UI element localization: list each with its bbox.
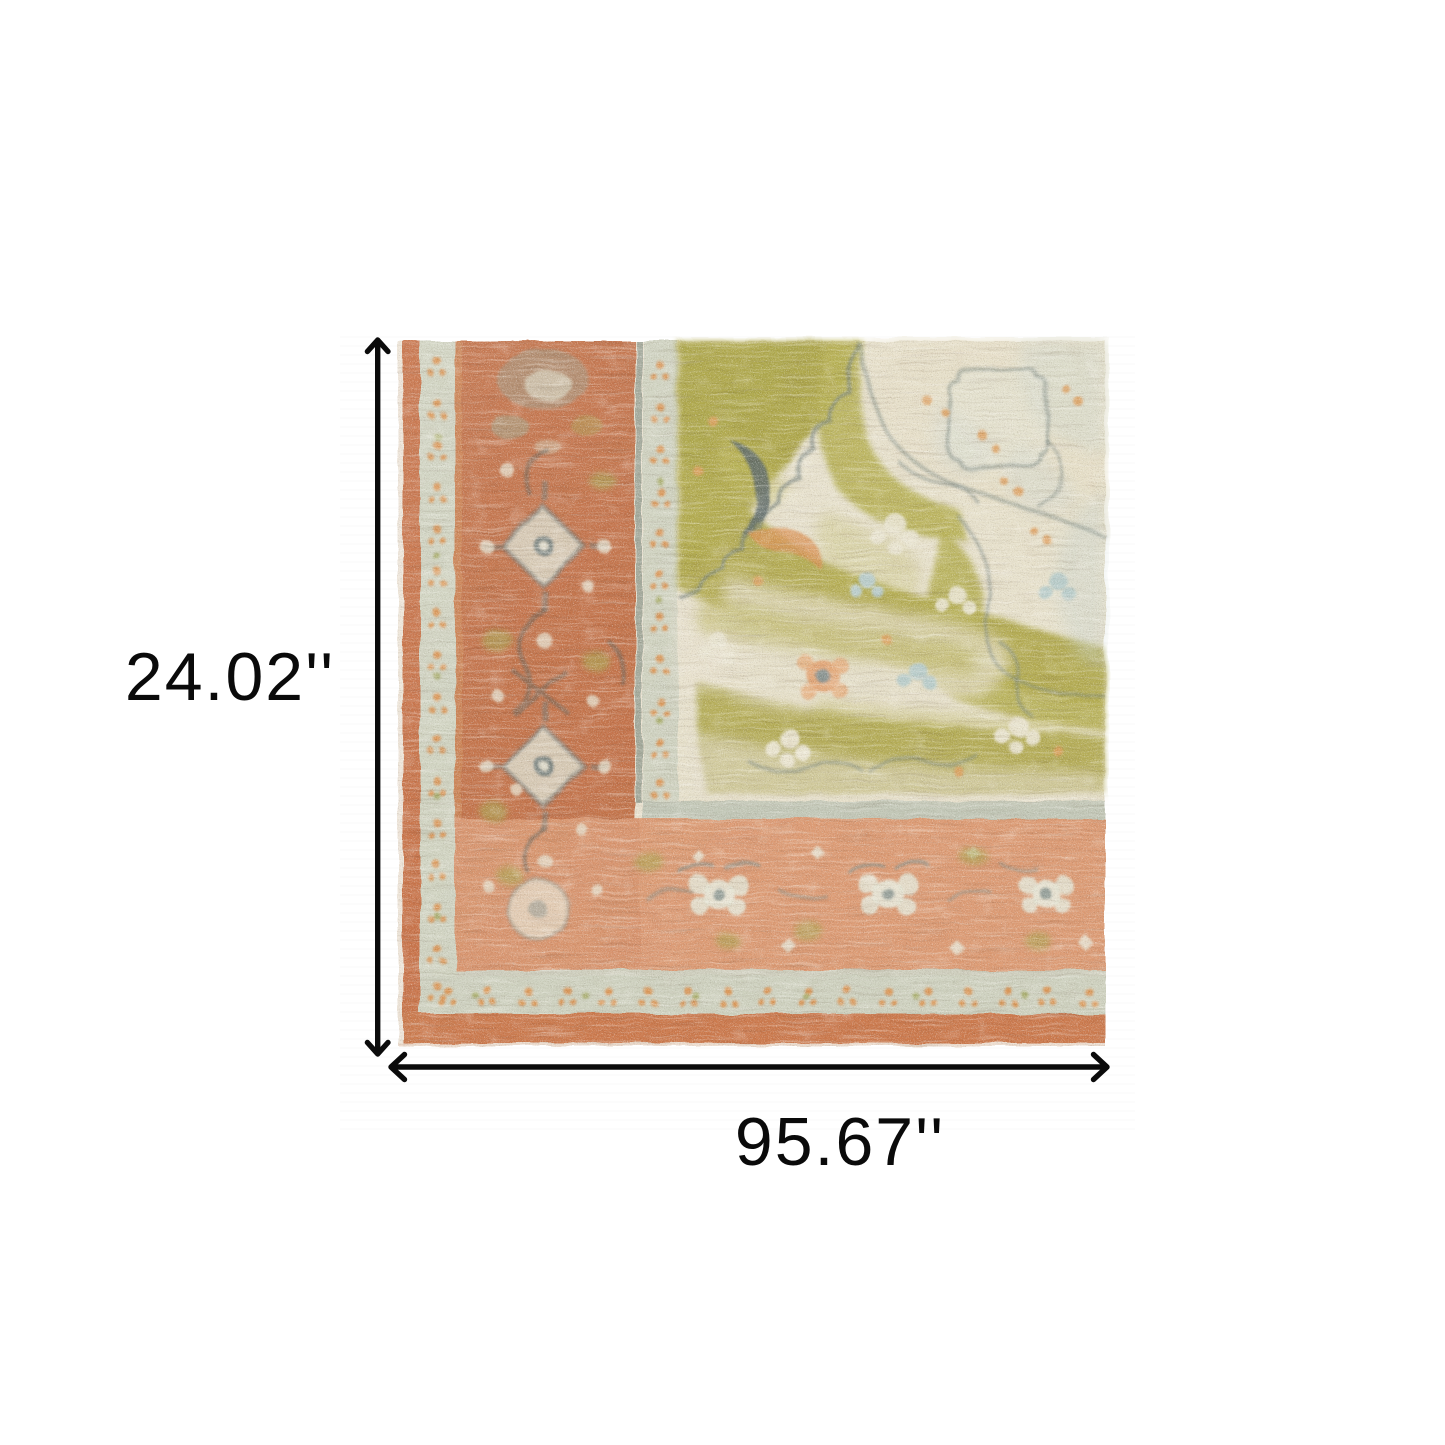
svg-text:24.02'': 24.02'' [125,639,335,715]
svg-text:95.67'': 95.67'' [735,1104,945,1180]
